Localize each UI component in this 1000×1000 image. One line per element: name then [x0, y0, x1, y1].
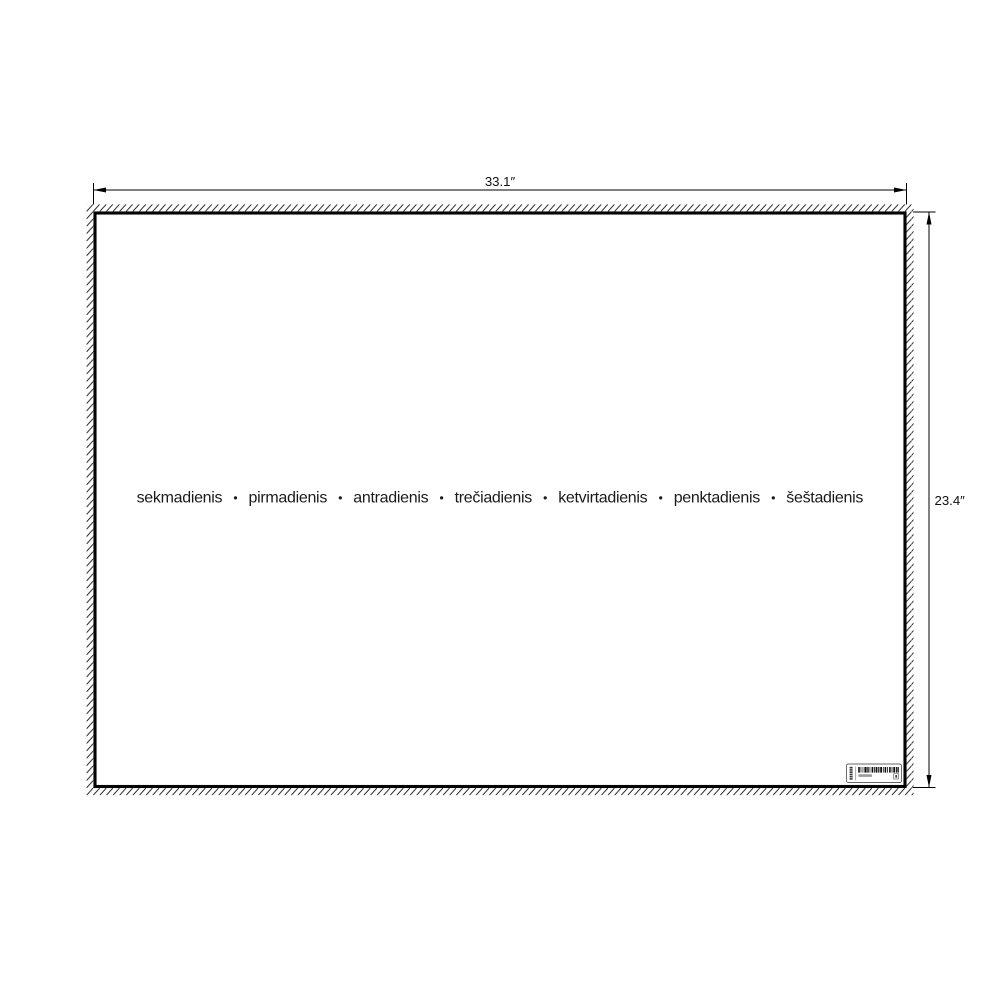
svg-text:trečiadienis: trečiadienis — [455, 489, 533, 506]
svg-text:23.4″: 23.4″ — [935, 493, 966, 508]
svg-text:33.1″: 33.1″ — [485, 174, 516, 189]
svg-text:šeštadienis: šeštadienis — [786, 489, 863, 506]
svg-text:antradienis: antradienis — [353, 489, 428, 506]
svg-text:penktadienis: penktadienis — [674, 489, 761, 506]
svg-text:pirmadienis: pirmadienis — [249, 489, 328, 506]
svg-text:sekmadienis: sekmadienis — [137, 489, 223, 506]
svg-text:ketvirtadienis: ketvirtadienis — [558, 489, 647, 506]
